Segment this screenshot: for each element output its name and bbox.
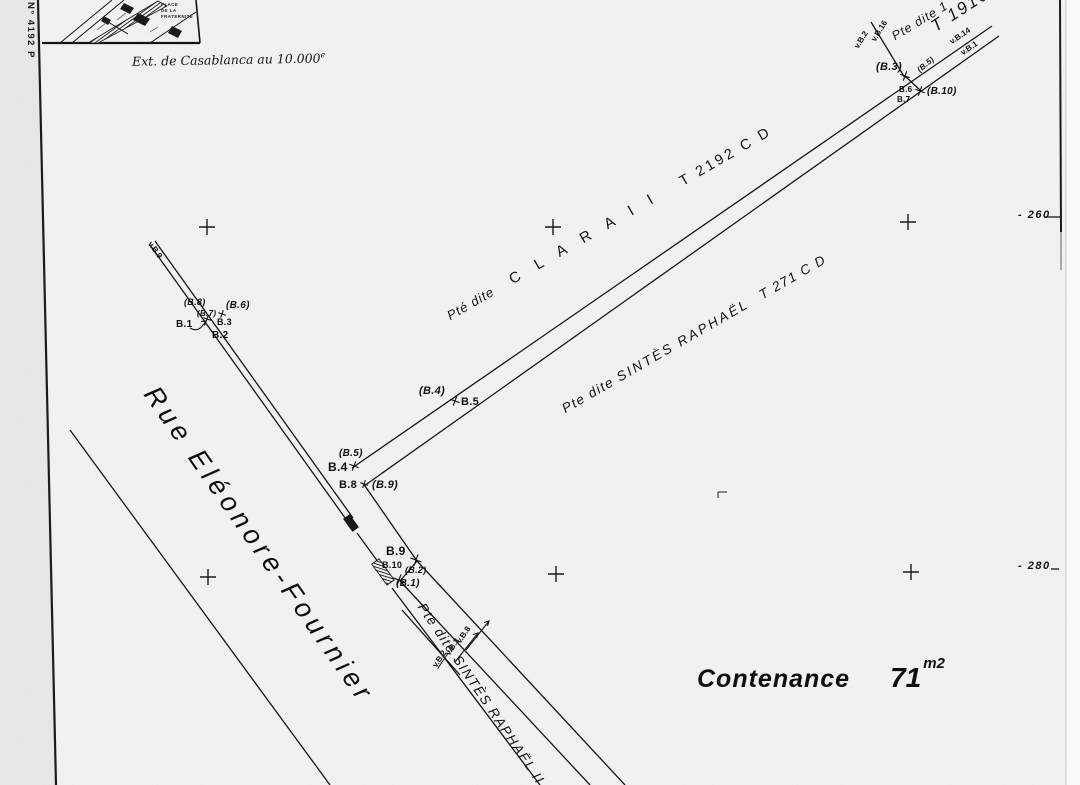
plan-drawing (0, 0, 1080, 785)
right-border-line (1060, 0, 1061, 270)
scan-noise (0, 0, 1080, 785)
cadastral-plan-scan: N° 4192 P PLACE DE LA FRATERNITÉ Ext. de… (0, 0, 1080, 785)
